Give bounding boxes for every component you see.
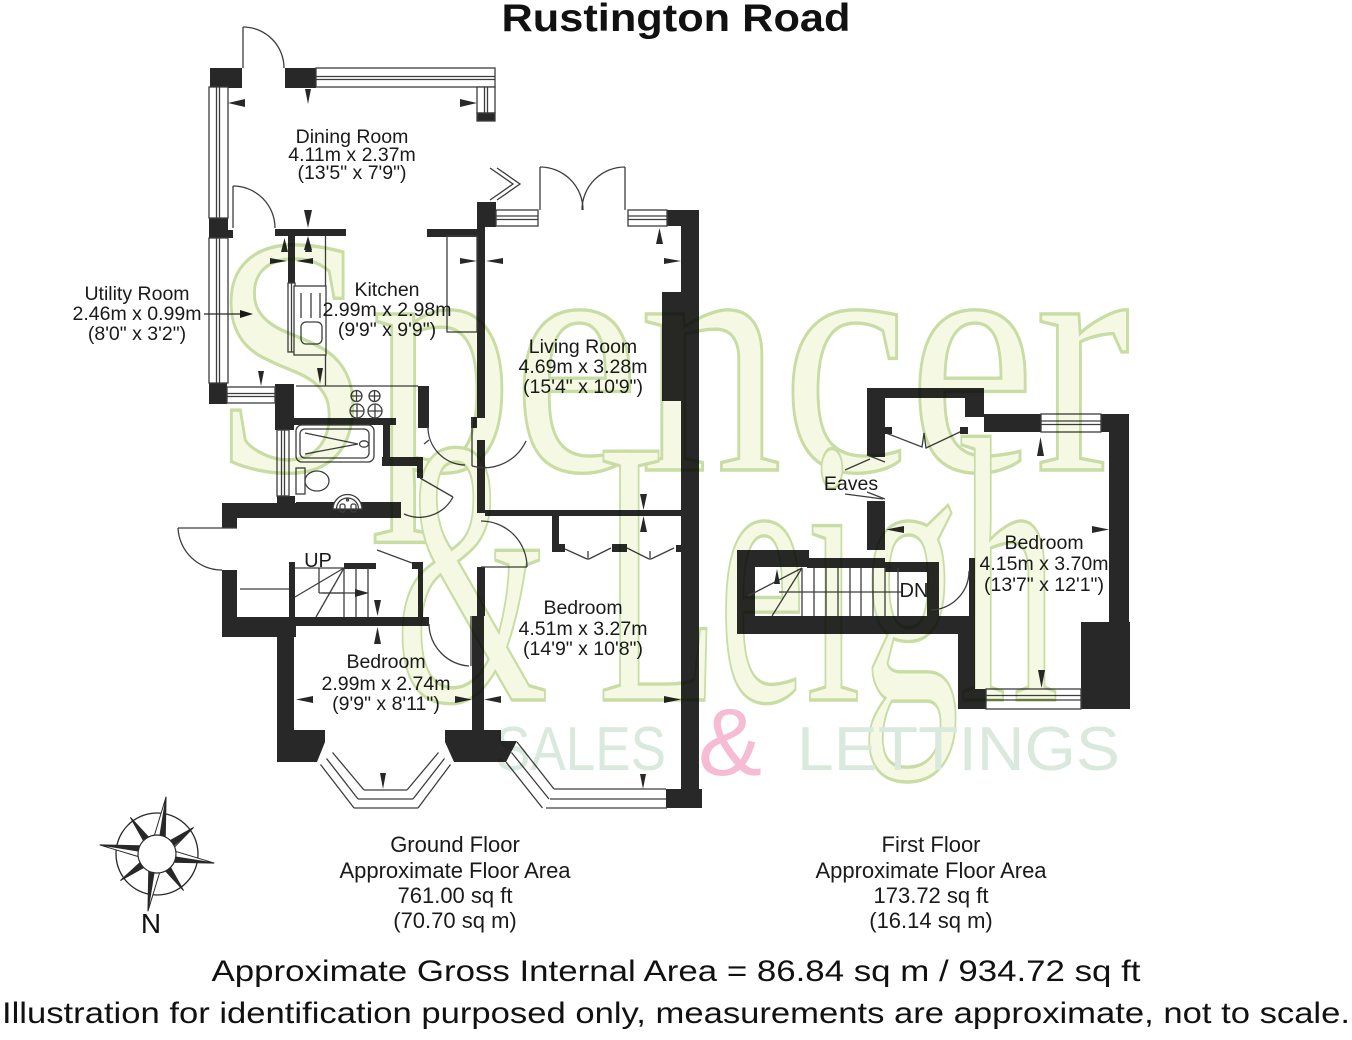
svg-text:Rustington Road: Rustington Road [502,0,851,40]
svg-text:173.72 sq ft: 173.72 sq ft [874,883,989,908]
svg-text:(70.70 sq m): (70.70 sq m) [393,908,517,933]
svg-text:2.46m x 0.99m: 2.46m x 0.99m [73,303,202,325]
svg-text:Approximate Gross Internal Are: Approximate Gross Internal Area = 86.84 … [212,955,1141,988]
svg-text:&: & [698,689,762,796]
svg-text:Approximate Floor Area: Approximate Floor Area [339,858,571,883]
svg-text:N: N [141,908,161,939]
svg-text:First Floor: First Floor [882,832,981,857]
svg-text:SALES: SALES [495,715,666,784]
svg-text:Ground Floor: Ground Floor [390,832,520,857]
svg-text:LETTINGS: LETTINGS [797,715,1120,784]
svg-text:761.00 sq ft: 761.00 sq ft [398,883,513,908]
svg-text:(8'0" x 3'2"): (8'0" x 3'2") [88,323,186,345]
svg-text:(16.14 sq m): (16.14 sq m) [869,908,993,933]
svg-text:Approximate Floor Area: Approximate Floor Area [815,858,1047,883]
svg-text:UP: UP [304,550,332,572]
svg-text:Utility Room: Utility Room [84,283,189,305]
svg-text:Illustration for identificatio: Illustration for identification purposed… [2,997,1350,1030]
